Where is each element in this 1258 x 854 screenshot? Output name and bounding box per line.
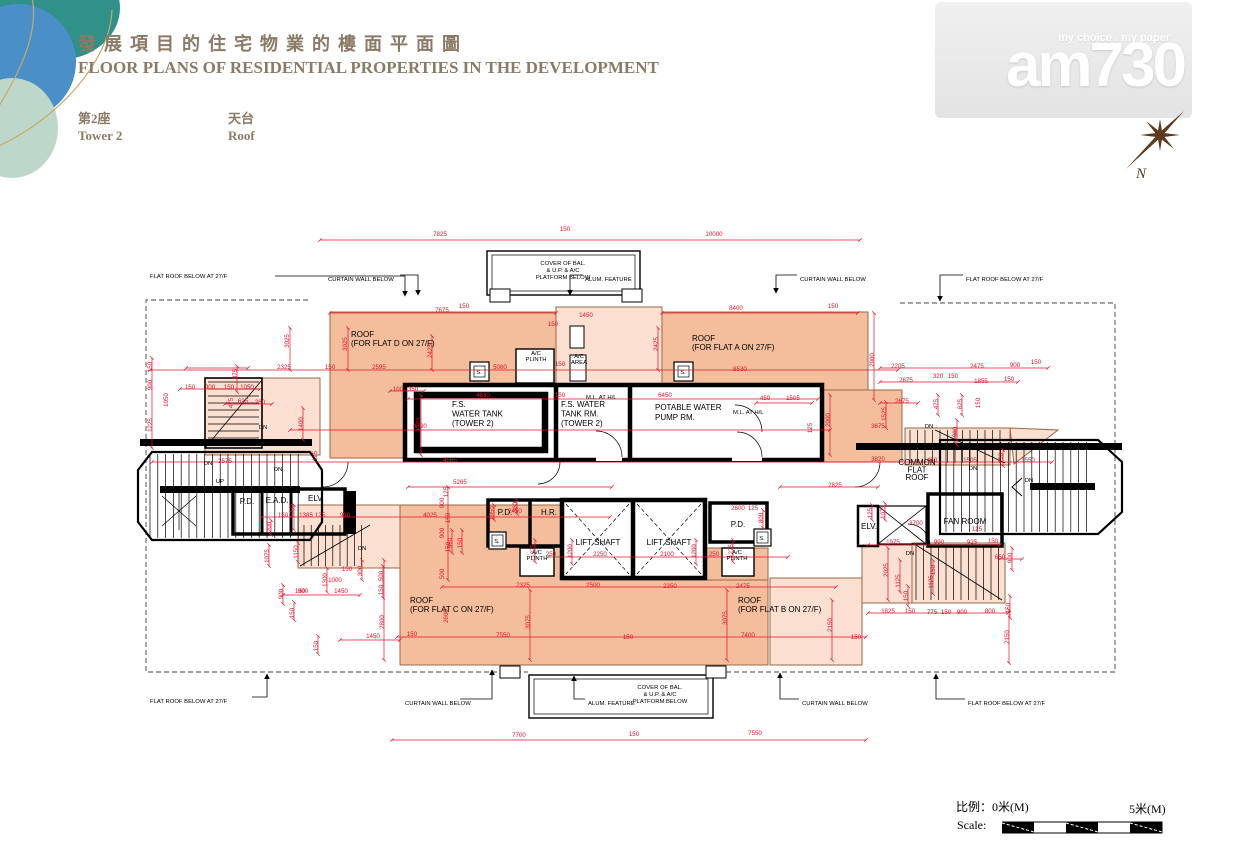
dimension-label: 150	[903, 590, 910, 601]
dimension-label: 2475	[970, 363, 984, 370]
room-label: P.D.	[498, 508, 513, 517]
dimension-label: 3700	[909, 520, 923, 527]
dimension-label: 900	[278, 588, 285, 599]
dimension-label: 900	[147, 379, 154, 390]
scale-english-label: Scale:	[957, 818, 986, 833]
room-label: P.D.	[731, 520, 746, 529]
dimension-label: 150	[224, 384, 235, 391]
dimension-label: 1050	[163, 393, 170, 407]
dimension-label: 200	[266, 521, 273, 532]
dimension-label: 150	[342, 566, 353, 573]
annotation-label: CURTAIN WALL BELOW	[405, 701, 471, 707]
dimension-label: 2325	[277, 364, 291, 371]
wall-band-left	[140, 439, 312, 446]
dimension-label: 320	[933, 373, 944, 380]
dimension-label: 1550	[1021, 457, 1035, 464]
dimension-label: 1000	[328, 577, 342, 584]
room-label: F.S. WATERTANK RM.(TOWER 2)	[561, 400, 605, 428]
annotation-label: DN	[358, 546, 367, 552]
dimension-label: 990	[340, 512, 351, 519]
dimension-label: 1525	[881, 407, 888, 421]
room-label: H.R.	[541, 508, 557, 517]
dimension-label: 2595	[372, 364, 386, 371]
dimension-label: 500	[378, 570, 385, 581]
room-label: COMMONFLATROOF	[898, 458, 936, 482]
leader-line	[460, 671, 492, 699]
dimension-label: 125	[972, 526, 983, 533]
dimension-label: 960	[447, 537, 454, 548]
dimension-label: 990	[934, 539, 945, 546]
dimension-label: 250	[709, 551, 720, 558]
dimension-label: 900	[952, 426, 959, 437]
dimension-label: 2025	[883, 563, 890, 577]
annotation-label: DN	[969, 466, 978, 472]
room-label: LIFT SHAFT	[647, 538, 692, 547]
dimension-label: 2900	[869, 353, 876, 367]
dimension-label: 800	[758, 512, 765, 523]
dimension-label: 150	[905, 608, 916, 615]
wall-band-right	[856, 443, 1122, 450]
dimension-label: 350	[408, 386, 419, 393]
dimension-label: 150	[560, 226, 571, 233]
dimension-label: 2150	[827, 618, 834, 632]
annotation-label: CURTAIN WALL BELOW	[328, 277, 394, 283]
dimension-label: 2500	[586, 582, 600, 589]
dimension-label: 125	[748, 505, 759, 512]
dimension-label: 1855	[974, 378, 988, 385]
dimension-label: 800	[985, 608, 996, 615]
leader-line	[936, 675, 965, 699]
dimension-label: 10000	[705, 231, 723, 238]
annotation-label: S.	[759, 536, 765, 542]
dimension-label: 150	[459, 303, 470, 310]
dimension-label: 1950	[489, 506, 496, 520]
dimension-label: 300	[357, 565, 364, 576]
dimension-label: 150	[948, 373, 959, 380]
annotation-label: DN	[274, 467, 283, 473]
room-label: FAN ROOM	[944, 517, 987, 526]
dimension-label: 8400	[729, 305, 743, 312]
dimension-label: 625	[238, 398, 249, 405]
dimension-label: 1505	[963, 457, 977, 464]
dimension-label: 1200	[691, 544, 698, 558]
dimension-label: 2000	[825, 413, 832, 427]
dimension-label: 150	[313, 640, 320, 651]
dimension-label: 2100	[660, 551, 674, 558]
dimension-label: 1975	[886, 539, 900, 546]
dimension-label: 150	[1005, 602, 1012, 613]
dimension-label: 150	[147, 361, 154, 372]
dimension-label: 900	[205, 384, 216, 391]
dimension-label: 1505	[786, 395, 800, 402]
dimension-label: 1200	[567, 544, 574, 558]
annotation-label: FLAT ROOF BELOW AT 27/F	[150, 274, 228, 280]
dimension-label: 7700	[512, 732, 526, 739]
dimension-label: 2475	[736, 583, 750, 590]
dimension-label: 4565	[443, 457, 457, 464]
dimension-label: 7550	[748, 730, 762, 737]
dimension-label: 6450	[658, 392, 672, 399]
dimension-label: 7550	[496, 632, 510, 639]
leader-line	[780, 674, 799, 699]
dimension-label: 230	[998, 452, 1005, 463]
dimension-label: 150	[1004, 376, 1015, 383]
dimension-label: 475	[933, 398, 940, 409]
dimension-label: 2325	[516, 582, 530, 589]
room-label: POTABLE WATERPUMP RM.	[655, 403, 722, 422]
dimension-label: 2675	[895, 398, 909, 405]
dimension-label: 1450	[366, 633, 380, 640]
dimension-label: 125	[867, 507, 874, 518]
annotation-label: ALUM. FEATURE	[588, 701, 635, 707]
dimension-label: 900	[439, 497, 446, 508]
dimension-label: 500	[439, 568, 446, 579]
dimension-label: 775	[927, 609, 938, 616]
dimension-label: 2575	[218, 458, 232, 465]
dimension-label: 4630	[476, 392, 490, 399]
dimension-label: 150	[930, 564, 937, 575]
dimension-label: 1075	[880, 505, 887, 519]
annotation-label: DN	[204, 461, 213, 467]
annotation-label: S.	[476, 370, 482, 376]
dimension-label: 125	[315, 512, 326, 519]
dimension-label: 7825	[433, 231, 447, 238]
leader-line	[400, 275, 418, 294]
dimension-label: 2825	[828, 482, 842, 489]
dimension-label: 125	[312, 450, 319, 461]
annotation-label: DN	[925, 424, 934, 430]
dimension-label: 1775	[416, 417, 423, 431]
dimension-label: 7400	[741, 632, 755, 639]
dimension-label: 150	[278, 512, 289, 519]
floor-plan: 7825150100007675150840015014501503025302…	[0, 0, 1258, 854]
dimension-label: 3025	[342, 337, 349, 351]
dimension-label: 150	[623, 634, 634, 641]
annotation-label: FLAT ROOF BELOW AT 27/F	[150, 699, 228, 705]
dimension-label: 150	[407, 631, 418, 638]
room-label: F.S.WATER TANK(TOWER 2)	[452, 400, 503, 428]
room-label: ELV.	[308, 494, 324, 503]
dimension-label: 150	[851, 634, 862, 641]
annotation-label: ALUM. FEATURE	[585, 277, 632, 283]
dimension-label: 1450	[334, 588, 348, 595]
dimension-label: 1050	[289, 504, 296, 518]
dimension-label: 2800	[379, 615, 386, 629]
dimension-label: 150	[629, 731, 640, 738]
dimension-label: 7675	[435, 307, 449, 314]
roof-flat-c	[400, 505, 768, 665]
room-label: P.D.	[240, 497, 255, 506]
dimension-label: 5265	[453, 479, 467, 486]
dimension-label: 1450	[579, 312, 593, 319]
dimension-label: 1125	[895, 574, 902, 588]
dimension-label: 150	[988, 538, 999, 545]
dimension-label: 150	[548, 321, 559, 328]
annotation-label: S.	[680, 370, 686, 376]
dimension-label: 1125	[928, 575, 935, 589]
annotation-label: CURTAIN WALL BELOW	[802, 701, 868, 707]
dimension-label: 900	[298, 588, 309, 595]
dimension-label: 2600	[731, 505, 745, 512]
annotation-label: DN	[906, 551, 915, 557]
annotation-label: UP	[216, 479, 224, 485]
dimension-label: 150	[445, 512, 452, 523]
dimension-label: 150	[457, 537, 464, 548]
dimension-label: 2150	[1004, 630, 1011, 644]
annotation-label: FLAT ROOF BELOW AT 27/F	[966, 277, 1044, 283]
dimension-label: 360	[512, 501, 519, 512]
dimension-label: 150	[555, 392, 566, 399]
annotation-label: S.	[494, 539, 500, 545]
annotation-label: DN	[1025, 478, 1034, 484]
dimension-label: 1150	[293, 545, 300, 559]
dimension-label: 125	[443, 486, 450, 497]
dimension-label: 150	[185, 384, 196, 391]
dimension-label: 5080	[493, 364, 507, 371]
dimension-label: 3820	[871, 456, 885, 463]
dimension-label: 1225	[147, 418, 154, 432]
dimension-label: 150	[828, 303, 839, 310]
dimension-label: 1075	[264, 549, 271, 563]
dimension-label: 150	[975, 397, 982, 408]
dimension-label: 875	[232, 368, 239, 379]
dimension-label: 450	[760, 395, 771, 402]
annotation-label: DN	[259, 425, 268, 431]
dimension-label: 475	[228, 397, 235, 408]
leader-line	[940, 275, 963, 300]
dimension-label: 900	[1007, 552, 1014, 563]
dimension-label: 2205	[891, 363, 905, 370]
dimension-label: 150	[941, 609, 952, 616]
dimension-label: 150	[289, 607, 296, 618]
roof-flat-b	[770, 578, 862, 665]
annotation-label: CURTAIN WALL BELOW	[800, 277, 866, 283]
dimension-label: 2675	[899, 377, 913, 384]
dimension-label: 1050	[240, 384, 254, 391]
dimension-label: 150	[325, 364, 336, 371]
dimension-label: 900	[957, 609, 968, 616]
dimension-label: 925	[967, 539, 978, 546]
annotation-label: FLAT ROOF BELOW AT 27/F	[968, 701, 1046, 707]
dimension-label: 150	[555, 361, 566, 368]
dimension-label: 2250	[593, 551, 607, 558]
room-label: LIFT SHAFT	[576, 538, 621, 547]
dimension-label: 150	[378, 584, 385, 595]
dimension-label: 2350	[663, 583, 677, 590]
dimension-label: 1825	[881, 608, 895, 615]
dimension-label: 8530	[733, 366, 747, 373]
dimension-label: 1385	[299, 512, 313, 519]
dimension-label: 3075	[525, 615, 532, 629]
dimension-label: 125	[807, 422, 814, 433]
leader-line	[252, 675, 267, 697]
leader-line	[776, 275, 797, 292]
dimension-label: 100	[393, 386, 404, 393]
dimension-label: 1400	[298, 417, 305, 431]
page: 發展項目的住宅物業的樓面平面圖 FLOOR PLANS OF RESIDENTI…	[0, 0, 1258, 854]
scale-bar: 比例：0米(M) 5米(M) Scale:	[956, 798, 1196, 842]
scale-zero-label: 比例：0米(M)	[956, 798, 1029, 815]
annotation-label: M.L. AT H/L	[733, 410, 764, 416]
dimension-label: 150	[1031, 359, 1042, 366]
dimension-label: 625	[957, 398, 964, 409]
scale-five-label: 5米(M)	[1129, 800, 1166, 817]
dimension-label: 4025	[423, 512, 437, 519]
dimension-label: 900	[1010, 362, 1021, 369]
dimension-label: 3075	[722, 611, 729, 625]
dimension-label: 2425	[653, 337, 660, 351]
dimension-label: 650	[995, 554, 1006, 561]
dimension-label: 280	[255, 399, 266, 406]
room-label: E.A.D.	[265, 496, 288, 505]
dimension-label: 3025	[284, 334, 291, 348]
dimension-label: 3675	[871, 423, 885, 430]
dimension-label: 900	[439, 527, 446, 538]
scale-bar-graphic	[1002, 820, 1172, 836]
room-label: ELV.	[861, 522, 877, 531]
